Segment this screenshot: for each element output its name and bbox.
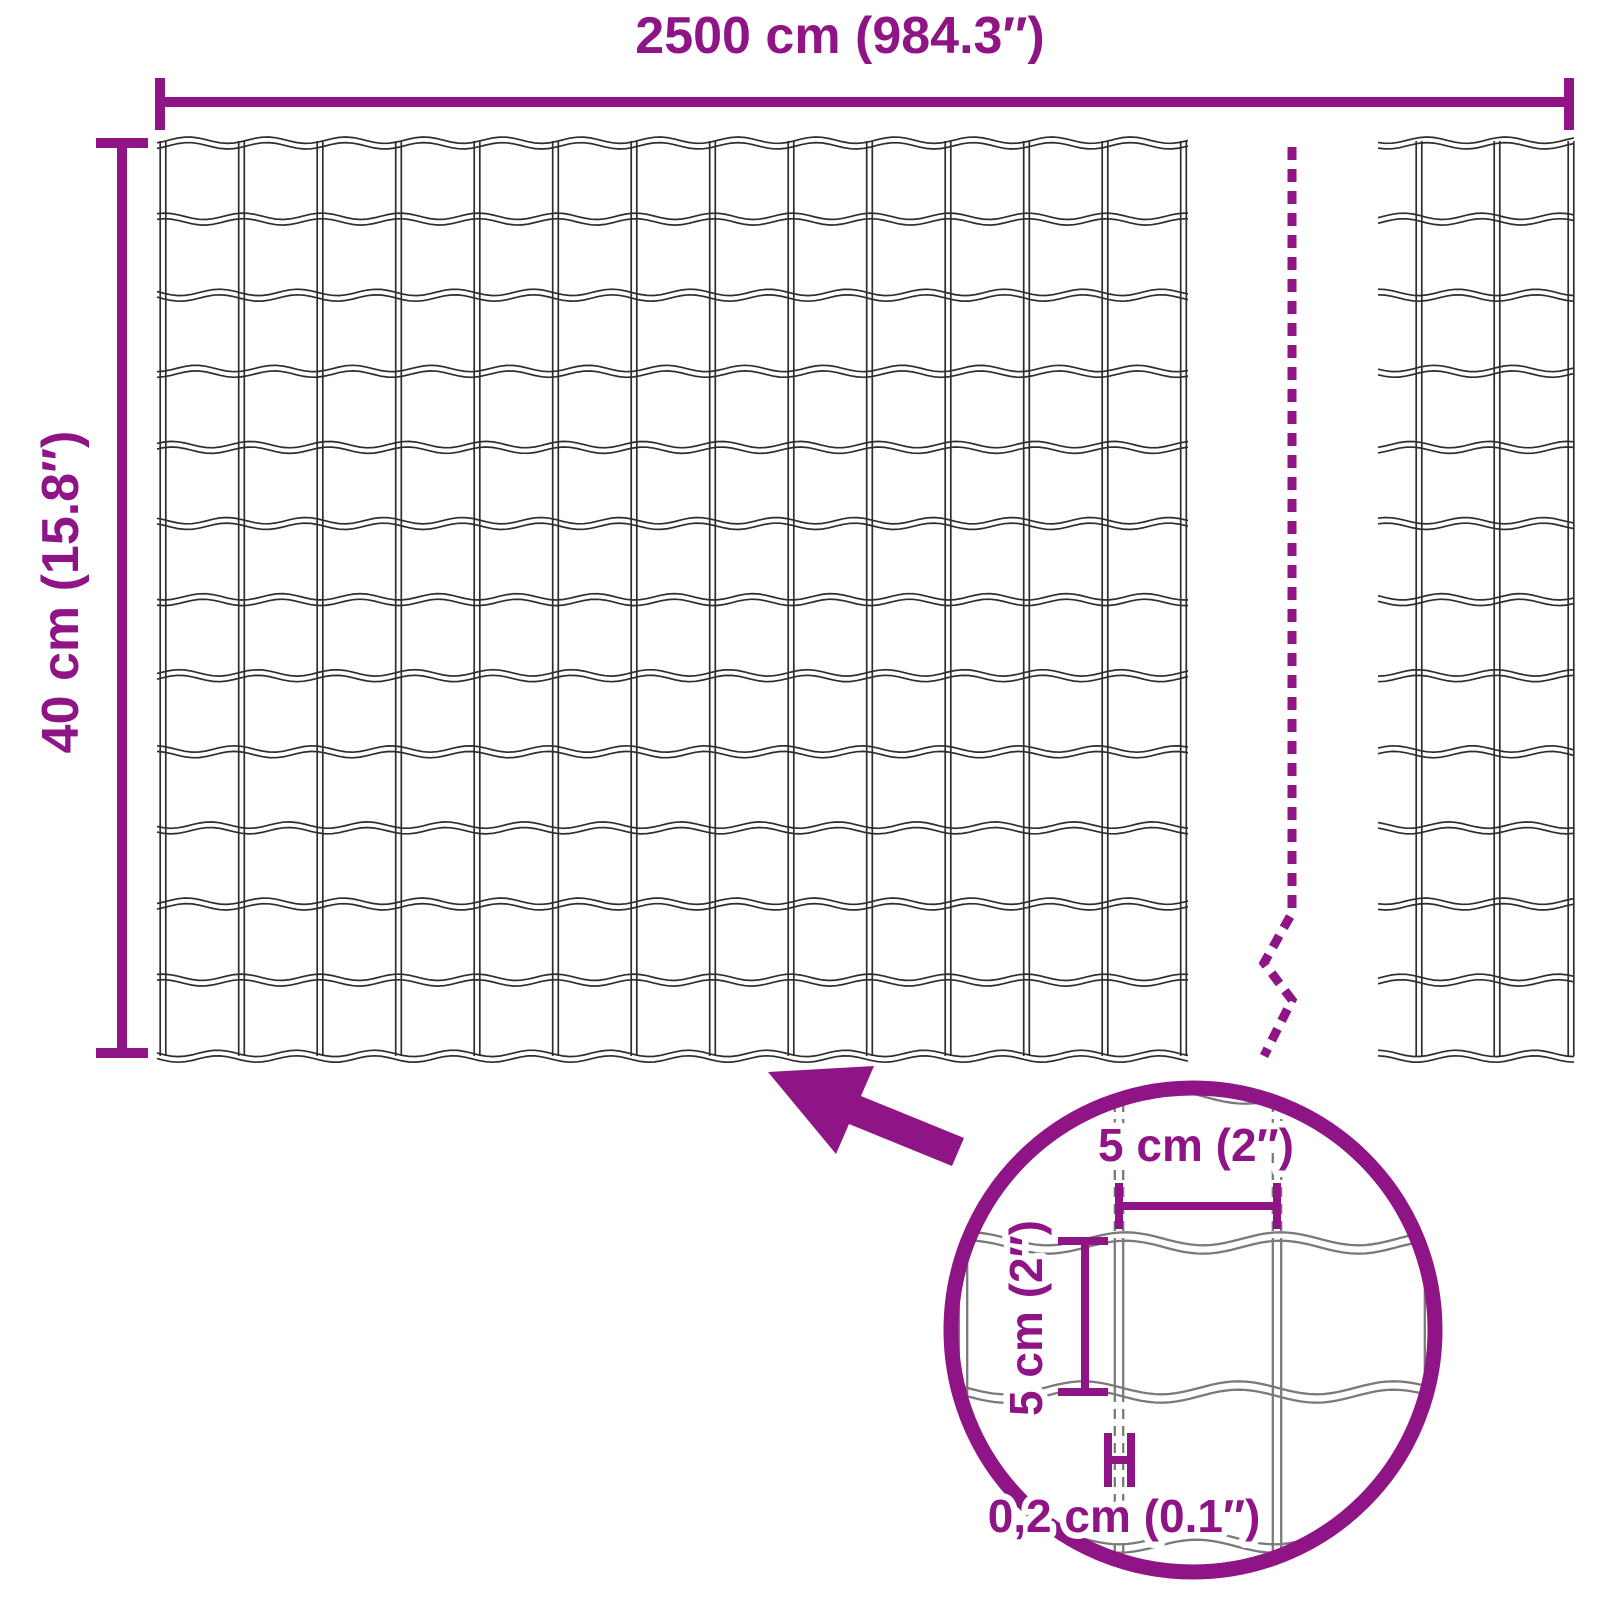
break-line — [1264, 147, 1292, 1056]
detail-mesh-height-label: 5 cm (2″) — [1000, 1220, 1052, 1416]
zoom-arrow-icon — [768, 1066, 964, 1166]
width-label: 2500 cm (984.3″) — [635, 7, 1044, 65]
wire-thickness-marker — [1108, 1433, 1131, 1487]
width-dimension — [160, 78, 1569, 130]
wire-thickness-label: 0,2 cm (0.1″) — [988, 1490, 1261, 1542]
detail-width-dimension — [1119, 1183, 1277, 1229]
diagram-canvas: 2500 cm (984.3″) 40 cm (15.8″) 5 cm (2″)… — [0, 0, 1600, 1600]
height-dimension — [96, 143, 148, 1053]
mesh-panel-main — [157, 137, 1188, 1062]
mesh-panel-partial — [1378, 137, 1574, 1062]
height-label: 40 cm (15.8″) — [32, 431, 90, 754]
detail-mesh-width-label: 5 cm (2″) — [1098, 1119, 1294, 1171]
detail-height-dimension — [1058, 1241, 1108, 1392]
product-dimension-diagram: 2500 cm (984.3″) 40 cm (15.8″) 5 cm (2″)… — [0, 0, 1600, 1600]
